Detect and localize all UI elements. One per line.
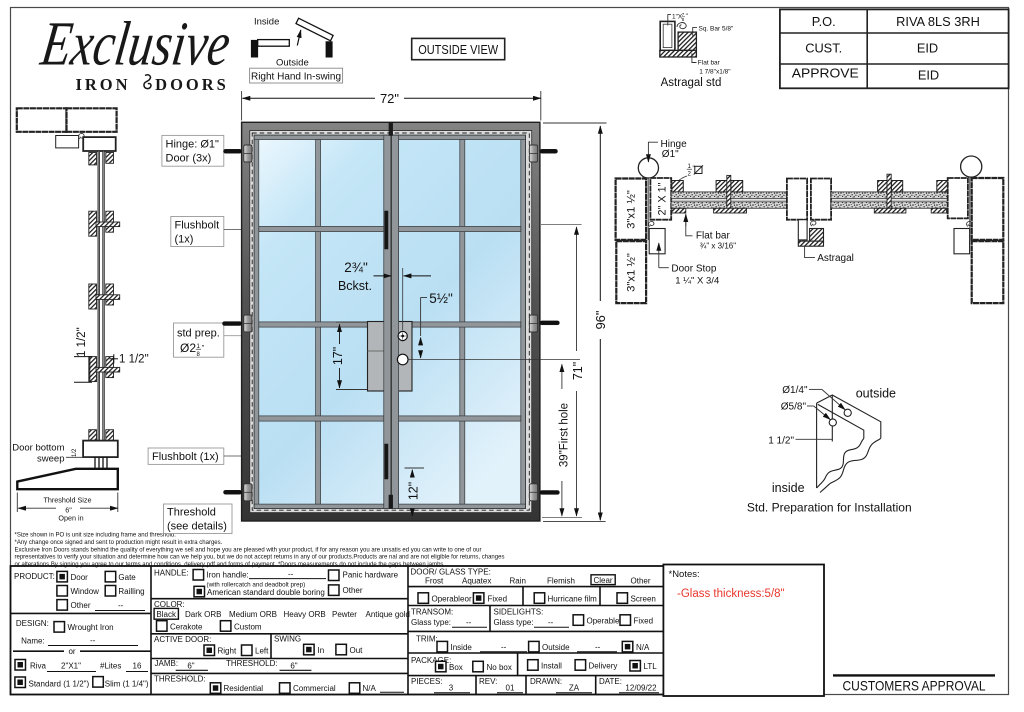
- svg-text:LTL: LTL: [644, 662, 658, 671]
- svg-text:Door: Door: [71, 573, 89, 582]
- svg-text:representatives to verify your: representatives to verify your situation…: [15, 555, 505, 561]
- svg-text:--: --: [595, 643, 601, 652]
- svg-text:EID: EID: [918, 67, 939, 82]
- svg-text:Dark ORB: Dark ORB: [185, 610, 221, 619]
- svg-text:Outside: Outside: [276, 58, 309, 69]
- svg-text:APPROVE: APPROVE: [792, 65, 859, 80]
- svg-text:01: 01: [506, 684, 515, 693]
- svg-text:Glass type:: Glass type:: [494, 618, 534, 627]
- svg-text:Exclusive Iron Doors stands be: Exclusive Iron Doors stands behind the q…: [15, 547, 482, 553]
- svg-text:1/2: 1/2: [72, 448, 78, 457]
- svg-text:P.O.: P.O.: [812, 14, 836, 29]
- svg-text:Black: Black: [156, 610, 177, 619]
- svg-text:Flushbolt: Flushbolt: [175, 220, 220, 232]
- svg-text:Fixed: Fixed: [488, 595, 508, 604]
- svg-text:Inside: Inside: [254, 17, 279, 28]
- svg-text:American standard double borin: American standard double boring: [207, 588, 325, 597]
- svg-text:Standard (1 1/2"): Standard (1 1/2"): [29, 680, 90, 689]
- svg-text:Fixed: Fixed: [634, 617, 654, 626]
- svg-text:outside: outside: [856, 387, 896, 401]
- svg-text:6": 6": [187, 661, 194, 670]
- svg-text:3"x1 ½": 3"x1 ½": [626, 190, 638, 229]
- svg-text:IRON: IRON: [75, 75, 130, 94]
- svg-text:2" X 1": 2" X 1": [657, 182, 669, 215]
- svg-text:Ø1": Ø1": [662, 149, 679, 160]
- svg-text:N/A: N/A: [363, 684, 377, 693]
- svg-text:OUTSIDE VIEW: OUTSIDE VIEW: [418, 42, 499, 57]
- svg-text:REV:: REV:: [479, 677, 497, 686]
- svg-text:3"x1 ½": 3"x1 ½": [626, 253, 638, 292]
- svg-text:Slim (1 1/4"): Slim (1 1/4"): [105, 680, 149, 689]
- svg-text:2"X1": 2"X1": [61, 662, 81, 671]
- svg-text:PIECES:: PIECES:: [411, 677, 443, 686]
- svg-text:Panic hardware: Panic hardware: [343, 571, 399, 580]
- svg-text:1 ¼" X 3/4: 1 ¼" X 3/4: [675, 276, 719, 287]
- svg-text:Window: Window: [71, 587, 100, 596]
- svg-text:DESIGN:: DESIGN:: [16, 619, 49, 628]
- svg-text:Out: Out: [350, 646, 364, 655]
- svg-text:1 1/2": 1 1/2": [119, 354, 149, 366]
- svg-text:(see details): (see details): [167, 521, 227, 533]
- svg-text:JAMB:: JAMB:: [155, 659, 179, 668]
- svg-text:*Any change once signed and se: *Any change once signed and sent to prod…: [15, 540, 223, 546]
- svg-text:SWING: SWING: [274, 635, 301, 644]
- svg-text:EID: EID: [917, 40, 938, 55]
- svg-text:1 1/2": 1 1/2": [768, 435, 794, 446]
- svg-text:Pewter: Pewter: [332, 610, 357, 619]
- svg-text:Flushbolt (1x): Flushbolt (1x): [152, 451, 219, 463]
- svg-text:--: --: [90, 636, 96, 645]
- svg-text:Heavy ORB: Heavy ORB: [284, 610, 326, 619]
- svg-text:CUST.: CUST.: [805, 40, 842, 55]
- svg-text:39"First hole: 39"First hole: [559, 403, 571, 467]
- svg-text:Other: Other: [343, 586, 363, 595]
- svg-text:1 1/2": 1 1/2": [76, 327, 88, 357]
- svg-text:Ø5/8": Ø5/8": [781, 402, 807, 413]
- svg-text:--: --: [548, 618, 554, 627]
- svg-text:Frost: Frost: [425, 577, 444, 586]
- svg-text:16: 16: [133, 662, 142, 671]
- svg-text:TRANSOM:: TRANSOM:: [411, 608, 453, 617]
- svg-text:DOORS: DOORS: [155, 75, 229, 94]
- svg-text:2¾": 2¾": [344, 260, 368, 275]
- svg-text:Iron handle:: Iron handle:: [207, 571, 249, 580]
- svg-text:(1x): (1x): [175, 234, 194, 246]
- svg-text:No box: No box: [487, 663, 512, 672]
- svg-text:#Lites: #Lites: [100, 662, 121, 671]
- svg-text:Flat bar: Flat bar: [698, 60, 721, 67]
- svg-text:Operable: Operable: [432, 595, 465, 604]
- svg-text:Ø2: Ø2: [180, 341, 196, 355]
- svg-text:HANDLE:: HANDLE:: [154, 569, 189, 578]
- svg-text:Ø1/4": Ø1/4": [782, 385, 808, 396]
- svg-text:Railling: Railling: [118, 587, 144, 596]
- svg-text:inside: inside: [772, 481, 805, 495]
- svg-text:Screen: Screen: [631, 595, 656, 604]
- svg-text:Outside: Outside: [542, 643, 570, 652]
- svg-text:Door (3x): Door (3x): [166, 153, 212, 165]
- svg-text:Riva: Riva: [30, 662, 47, 671]
- svg-text:Medium ORB: Medium ORB: [229, 610, 277, 619]
- svg-text:Aquatex: Aquatex: [462, 577, 491, 586]
- svg-text:Residential: Residential: [224, 684, 264, 693]
- svg-text:Astragal std: Astragal std: [661, 77, 722, 89]
- svg-text:1 7/8"x1/8": 1 7/8"x1/8": [699, 69, 731, 76]
- svg-text:CUSTOMERS APPROVAL: CUSTOMERS APPROVAL: [843, 678, 986, 694]
- svg-text:Threshold: Threshold: [167, 507, 216, 519]
- svg-text:SIDELIGHTS:: SIDELIGHTS:: [494, 608, 544, 617]
- svg-text:-Glass thickness:5/8": -Glass thickness:5/8": [677, 588, 785, 600]
- svg-text:Install: Install: [541, 662, 562, 671]
- svg-text:--: --: [288, 570, 294, 579]
- svg-text:ACTIVE DOOR:: ACTIVE DOOR:: [154, 635, 211, 644]
- svg-text:96": 96": [593, 310, 608, 329]
- svg-text:Rain: Rain: [510, 577, 526, 586]
- svg-text:Flat bar: Flat bar: [696, 231, 731, 242]
- svg-text:Exclusive: Exclusive: [36, 10, 234, 79]
- svg-text:Antique gold: Antique gold: [366, 610, 410, 619]
- svg-text:--: --: [466, 618, 472, 627]
- svg-text:Sq. Bar 5/8": Sq. Bar 5/8": [699, 26, 735, 33]
- svg-text:THRESHOLD:: THRESHOLD:: [226, 659, 278, 668]
- svg-text:¾" x 3/16": ¾" x 3/16": [700, 242, 737, 251]
- svg-text:Other: Other: [631, 577, 651, 586]
- svg-text:71": 71": [571, 362, 585, 380]
- svg-text:RIVA 8LS 3RH: RIVA 8LS 3RH: [896, 14, 980, 29]
- svg-text:Door Stop: Door Stop: [671, 264, 716, 275]
- svg-text:or: or: [465, 595, 472, 604]
- svg-text:Std. Preparation for Installat: Std. Preparation for Installation: [747, 501, 912, 515]
- svg-text:--: --: [501, 643, 507, 652]
- svg-text:Inside: Inside: [451, 643, 473, 652]
- svg-text:sweep: sweep: [37, 454, 64, 465]
- svg-text:Hurricane film: Hurricane film: [548, 595, 598, 604]
- svg-text:Gate: Gate: [118, 573, 136, 582]
- svg-text:Name:: Name:: [21, 637, 45, 646]
- svg-text:*Notes:: *Notes:: [669, 569, 700, 580]
- svg-text:Right: Right: [218, 647, 237, 656]
- svg-text:Cerakote: Cerakote: [170, 623, 203, 632]
- svg-text:3: 3: [449, 684, 454, 693]
- svg-text:N/A: N/A: [636, 643, 650, 652]
- svg-text:12/09/22: 12/09/22: [625, 684, 657, 693]
- svg-text:DATE:: DATE:: [599, 677, 622, 686]
- svg-text:COLOR:: COLOR:: [154, 600, 185, 609]
- svg-text:Astragal: Astragal: [817, 253, 854, 264]
- svg-text:Custom: Custom: [234, 623, 262, 632]
- svg-text:Left: Left: [255, 647, 269, 656]
- svg-text:ZA: ZA: [569, 684, 580, 693]
- svg-text:THRESHOLD:: THRESHOLD:: [154, 675, 206, 684]
- svg-text:72": 72": [380, 91, 399, 106]
- svg-text:Threshold Size: Threshold Size: [44, 496, 92, 505]
- svg-text:DRAWN:: DRAWN:: [530, 677, 562, 686]
- svg-text:DOOR/ GLASS TYPE:: DOOR/ GLASS TYPE:: [411, 568, 491, 577]
- svg-text:17": 17": [331, 347, 345, 365]
- svg-text:Box: Box: [449, 663, 463, 672]
- svg-text:--: --: [118, 601, 124, 610]
- svg-text:Clear: Clear: [593, 576, 612, 585]
- svg-text:Delivery: Delivery: [589, 662, 618, 671]
- svg-text:Bckst.: Bckst.: [338, 279, 372, 293]
- svg-text:Open in: Open in: [58, 514, 83, 523]
- svg-text:Right Hand In-swing: Right Hand In-swing: [251, 72, 341, 83]
- svg-text:In: In: [318, 646, 325, 655]
- svg-text:Other: Other: [71, 601, 91, 610]
- svg-text:std prep.: std prep.: [177, 328, 220, 340]
- svg-text:or alterations.By signing you: or alterations.By signing you agree to o…: [15, 562, 444, 568]
- svg-text:5½": 5½": [429, 291, 453, 306]
- svg-text:12": 12": [407, 482, 421, 500]
- svg-text:Flemish: Flemish: [547, 577, 575, 586]
- svg-text:6": 6": [290, 661, 297, 670]
- svg-text:Hinge: Ø1": Hinge: Ø1": [166, 139, 220, 151]
- svg-text:TRIM:: TRIM:: [416, 635, 438, 644]
- svg-text:Commercial: Commercial: [293, 684, 336, 693]
- svg-text:Wrought Iron: Wrought Iron: [68, 623, 114, 632]
- svg-text:*Size shown in PO is unit size: *Size shown in PO is unit size including…: [15, 533, 177, 539]
- svg-text:or: or: [68, 647, 75, 656]
- svg-text:Operable: Operable: [587, 617, 620, 626]
- svg-text:Glass type:: Glass type:: [411, 618, 451, 627]
- svg-text:Door bottom: Door bottom: [12, 443, 64, 454]
- svg-text:PRODUCT:: PRODUCT:: [14, 572, 55, 581]
